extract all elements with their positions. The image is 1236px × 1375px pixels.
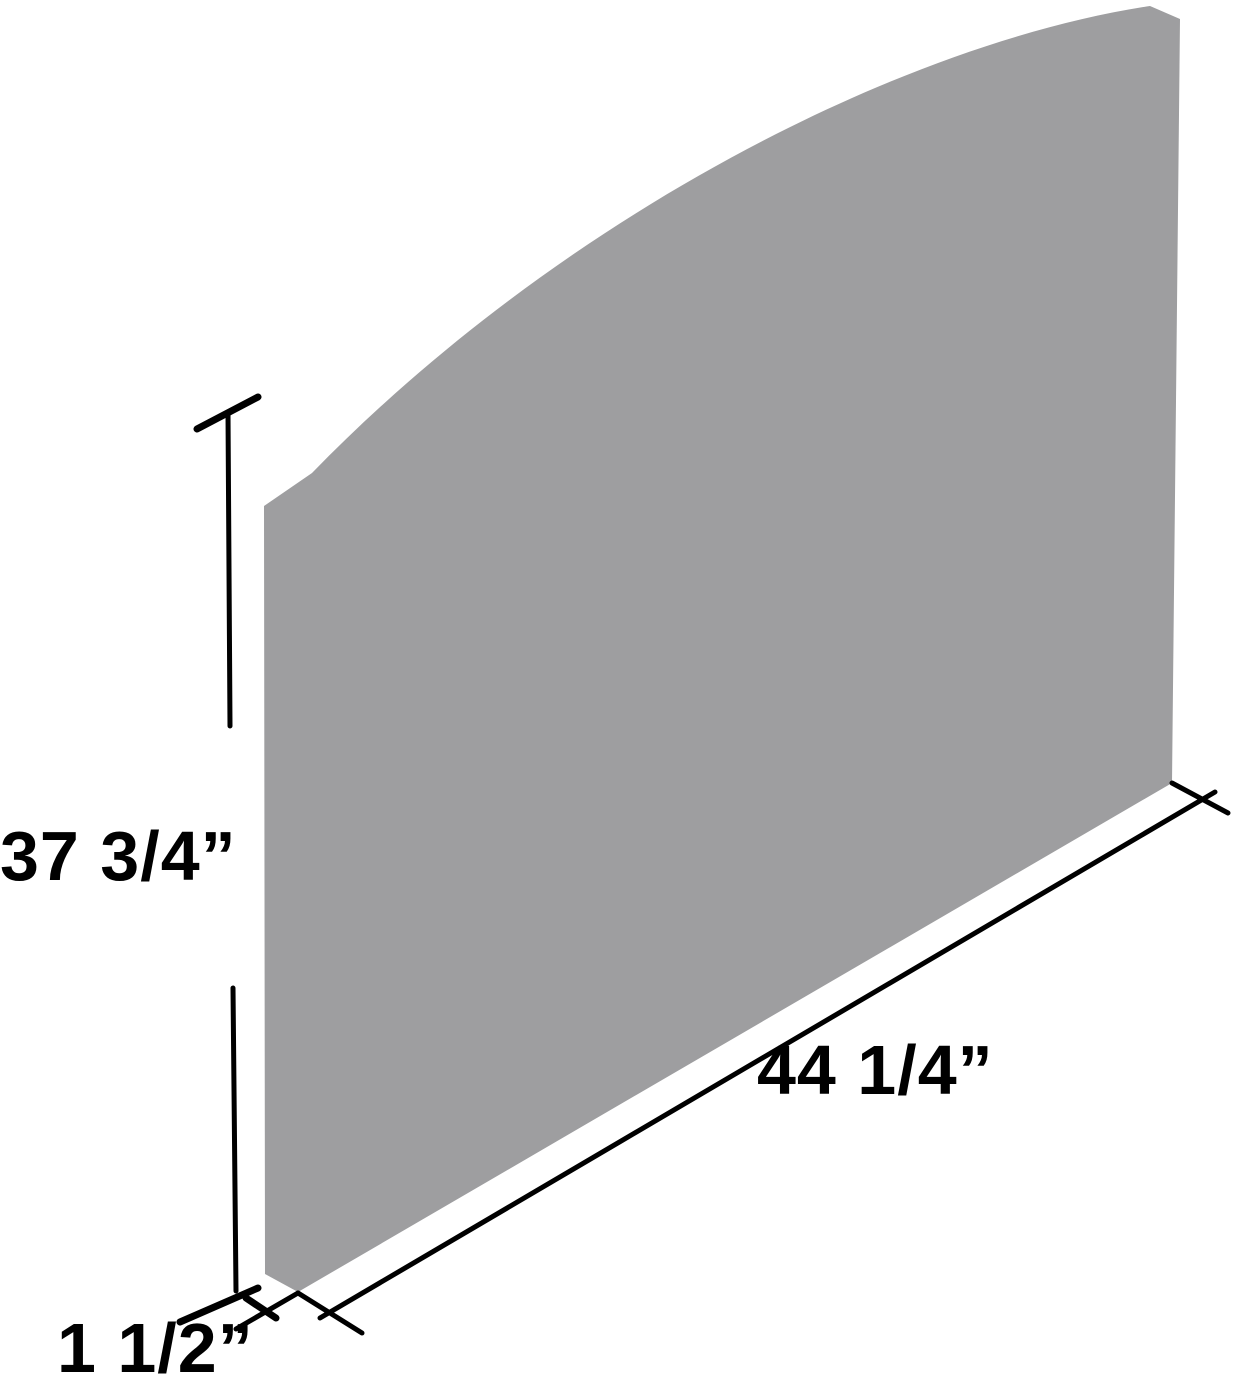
- height-dimension-label: 37 3/4”: [0, 821, 237, 891]
- panel-shape: [264, 6, 1180, 1292]
- height-dimension-line-lower: [233, 988, 236, 1291]
- width-extension-line-right: [1172, 783, 1228, 813]
- diagram-canvas: [0, 0, 1236, 1375]
- depth-dimension-label: 1 1/2”: [57, 1313, 254, 1375]
- height-dimension-line-upper: [228, 413, 230, 726]
- dimension-diagram: 37 3/4” 44 1/4” 1 1/2”: [0, 0, 1236, 1375]
- width-dimension-label: 44 1/4”: [757, 1035, 994, 1105]
